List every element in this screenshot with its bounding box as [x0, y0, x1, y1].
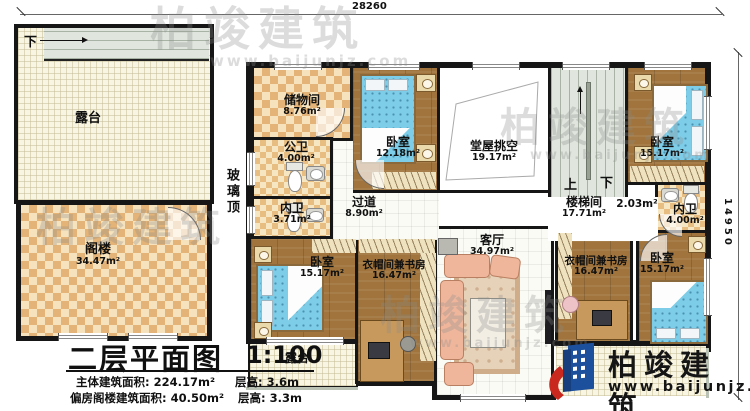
brand-company-name: 柏竣建筑	[608, 342, 750, 411]
pillow	[388, 79, 408, 91]
bed	[650, 280, 708, 344]
stairwell-down-label: 下	[600, 172, 613, 191]
bedroom-ne-label: 卧室 15.17m²	[640, 136, 684, 159]
stairwell-up-label: 上	[564, 174, 577, 193]
stair-arrow	[580, 92, 581, 114]
corridor-label: 过道 8.90m²	[345, 196, 383, 219]
window	[644, 62, 692, 70]
stairs-direction-arrowhead	[82, 37, 88, 43]
brand-website: www.baijunjz.com	[608, 379, 750, 395]
bed-sheet	[652, 282, 706, 308]
hall-void-outline	[440, 68, 548, 190]
window	[704, 258, 712, 316]
chair	[400, 336, 416, 352]
storage-label: 储物间 8.76m²	[283, 94, 321, 117]
annex-stairs	[44, 28, 209, 61]
coffee-table	[470, 298, 506, 348]
sofa	[440, 280, 464, 360]
computer-monitor	[592, 310, 612, 326]
stairwell-label: 楼梯间 17.71m²	[562, 196, 606, 219]
attic-label: 阁楼 34.47m²	[76, 243, 120, 267]
landing-area-label: 2.03m²	[616, 199, 657, 210]
glass-roof-label: 玻璃顶	[224, 168, 238, 216]
nightstand	[634, 74, 652, 91]
hall-void-label: 堂屋挑空 19.17m²	[470, 140, 518, 163]
bedroom-nw-label: 卧室 12.18m²	[376, 136, 420, 159]
top-dimension-line	[20, 14, 722, 15]
right-dimension-value: 14950	[722, 198, 733, 248]
window	[472, 62, 520, 70]
inner-bath-left-label: 内卫 3.71m²	[273, 202, 311, 225]
bath-window	[247, 152, 255, 186]
bedroom-sw-label: 卧室 15.17m²	[300, 256, 344, 279]
toilet	[286, 162, 301, 194]
window	[704, 96, 712, 150]
nightstand	[688, 236, 706, 253]
pillow	[656, 328, 676, 339]
pillow	[680, 328, 700, 339]
stair-rail	[586, 82, 591, 180]
armchair	[444, 362, 474, 386]
nightstand	[416, 74, 436, 92]
public-bath-label: 公卫 4.00m²	[277, 141, 315, 164]
study-right-label: 衣帽间兼书房 16.47m²	[565, 256, 628, 278]
stairs-direction-arrow	[40, 40, 82, 41]
bath-window	[247, 206, 255, 234]
terrace-label: 露台	[75, 112, 101, 126]
sink	[661, 188, 679, 202]
study-left-label: 衣帽间兼书房 16.47m²	[363, 260, 426, 282]
pillow	[365, 79, 385, 91]
closet	[630, 166, 704, 182]
sink	[306, 166, 325, 181]
armchair	[489, 254, 522, 280]
plan-scale: 1:100	[246, 341, 322, 369]
window	[368, 62, 420, 70]
window	[274, 62, 322, 70]
living-label: 客厅 34.97m²	[470, 234, 514, 257]
pillow	[691, 90, 703, 120]
sofa	[444, 254, 490, 278]
top-dimension-value: 28260	[352, 1, 387, 12]
window	[562, 62, 610, 70]
pillow	[261, 270, 273, 296]
bedroom-se-label: 卧室 15.17m²	[640, 252, 684, 275]
stair-arrowhead	[577, 86, 583, 92]
chair	[562, 296, 579, 313]
inner-bath-right-label: 内卫 4.00m²	[666, 203, 704, 226]
stat-line-2: 偏房阁楼建筑面积: 40.50m² 层高: 3.3m	[70, 390, 302, 406]
living-window	[460, 394, 526, 402]
pillow	[691, 126, 703, 156]
computer-monitor	[368, 342, 390, 359]
title-underline	[66, 370, 314, 372]
closet	[359, 239, 435, 253]
stat-line-1: 主体建筑面积: 224.17m² 层高: 3.6m	[76, 374, 299, 390]
annex-stairs-down-label: 下	[24, 31, 37, 50]
brand-logo-icon	[544, 334, 606, 406]
side-table	[438, 238, 458, 255]
floor-plan: 28260 14950 下 露台 阁楼 34.47m² 玻璃顶 储物间 8.76…	[0, 0, 750, 411]
nightstand	[254, 246, 272, 263]
closet	[312, 239, 356, 253]
